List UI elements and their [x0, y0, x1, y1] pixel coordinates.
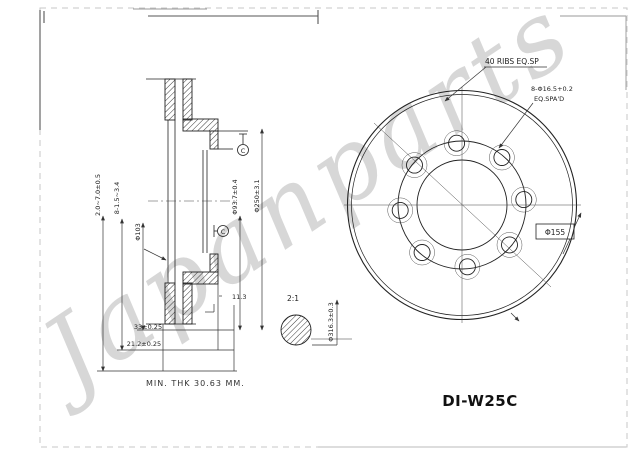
datum-letter-bottom: C — [221, 228, 226, 236]
section-hub-flange-upper — [210, 131, 218, 149]
dim-label-fillet: 8-1.5~3.4 — [113, 182, 121, 215]
holes-note-line1: 8-Φ16.5+0.2 — [531, 85, 573, 93]
technical-drawing: C C 2.0~7.0±0.5 8-1.5~3.4 Φ103 Φ93.7±0.4… — [0, 0, 640, 456]
dim-label-bore: Φ103 — [134, 223, 142, 241]
section-hat-step-upper — [183, 119, 218, 131]
section-hub-flange-lower — [210, 254, 218, 272]
section-ring-right-upper — [183, 79, 192, 120]
sheet-frame — [40, 8, 627, 447]
datum-letter-top: C — [241, 147, 246, 155]
section-cut-arrow — [511, 313, 519, 321]
outer-dia-label: Φ316.3±0.3 — [327, 302, 335, 342]
dim-label-height: 2.0~7.0±0.5 — [94, 174, 102, 216]
detail-scale: 2:1 — [287, 294, 299, 303]
step-dim: 11.3 — [232, 293, 246, 301]
section-hat-step-lower — [183, 272, 218, 284]
ribs-note: 40 RIBS EQ.SP — [485, 57, 539, 66]
bottom-dim-width: 33±0.25 — [134, 323, 162, 331]
holes-note-line2: EQ.SPA'D — [534, 95, 564, 103]
dim-label-mid-dia: Φ250±3.1 — [253, 179, 261, 212]
section-ring-right-lower — [183, 283, 192, 324]
part-number: DI-W25C — [442, 392, 518, 410]
drawing-sheet: Japanparts — [0, 0, 640, 456]
rim-detail-section — [281, 315, 311, 345]
front-view: 40 RIBS EQ.SP 8-Φ16.5+0.2 EQ.SPA'D Φ155 … — [281, 57, 581, 345]
bottom-dim-inner-width: 21.2±0.25 — [127, 340, 161, 348]
dim-label-hub-dia: Φ93.7±0.4 — [231, 179, 239, 214]
section-view: C C 2.0~7.0±0.5 8-1.5~3.4 Φ103 Φ93.7±0.4… — [94, 79, 262, 388]
section-ring-left-upper — [165, 79, 175, 120]
min-thickness-note: MIN. THK 30.63 MM. — [146, 379, 245, 388]
sheet-frame-marks — [40, 9, 626, 447]
bore-dim: Φ155 — [545, 228, 565, 237]
section-ring-left-lower — [165, 283, 175, 324]
